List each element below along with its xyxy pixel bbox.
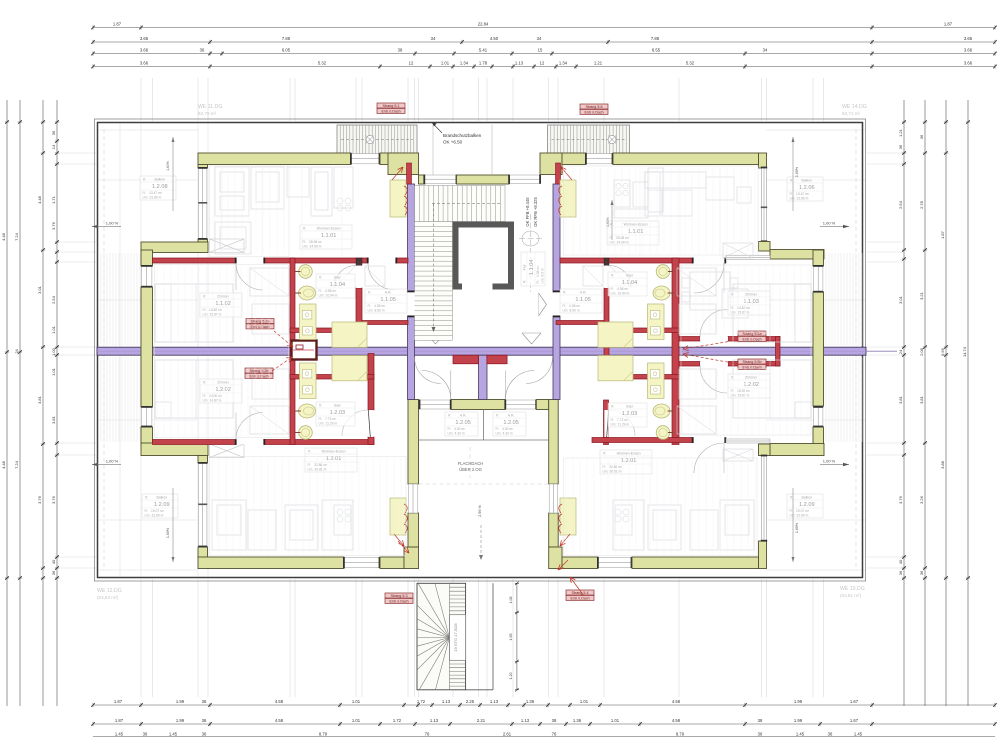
svg-text:Strang 5.5b: Strang 5.5b: [742, 360, 761, 364]
svg-text:5.32: 5.32: [318, 60, 327, 65]
svg-text:Um:: Um:: [143, 195, 149, 199]
svg-text:2.61: 2.61: [503, 732, 512, 737]
svg-text:Entl. ü.Dach: Entl. ü.Dach: [570, 596, 589, 600]
svg-text:Um:: Um:: [611, 422, 617, 426]
svg-text:1.99: 1.99: [794, 699, 803, 704]
svg-text:4.58: 4.58: [672, 718, 681, 723]
svg-text:1.01: 1.01: [611, 718, 620, 723]
svg-text:1.13: 1.13: [430, 718, 439, 723]
svg-text:38: 38: [398, 47, 403, 52]
svg-text:1.36: 1.36: [526, 699, 535, 704]
svg-text:1.71: 1.71: [51, 195, 56, 204]
svg-text:1.2.01: 1.2.01: [621, 458, 637, 464]
svg-text:WE 12.DG: WE 12.DG: [97, 588, 122, 594]
svg-text:22.80 m: 22.80 m: [150, 195, 162, 199]
svg-text:Um:: Um:: [203, 312, 209, 316]
svg-text:Um:: Um:: [308, 467, 314, 471]
svg-text:3.76: 3.76: [37, 495, 42, 504]
svg-text:3.21: 3.21: [919, 291, 924, 300]
svg-text:R:: R:: [145, 496, 148, 500]
svg-text:4.50: 4.50: [490, 36, 499, 41]
svg-text:7.24: 7.24: [14, 460, 19, 469]
svg-text:1.2.03: 1.2.03: [622, 411, 638, 417]
svg-text:1.2.05: 1.2.05: [503, 420, 519, 426]
svg-text:Brandschutzbalken: Brandschutzbalken: [443, 133, 482, 138]
svg-text:1.1.05: 1.1.05: [380, 297, 396, 303]
svg-text:6.99: 6.99: [940, 347, 945, 356]
svg-text:Um:: Um:: [303, 244, 309, 248]
svg-text:Zimmer: Zimmer: [745, 376, 758, 380]
svg-text:Um:: Um:: [540, 278, 544, 284]
svg-text:3.66: 3.66: [964, 60, 973, 65]
svg-text:24.99 m: 24.99 m: [617, 240, 629, 244]
svg-text:Um:: Um:: [790, 196, 796, 200]
svg-text:R:: R:: [611, 274, 614, 278]
svg-text:1.01: 1.01: [352, 718, 361, 723]
svg-text:24: 24: [898, 349, 903, 354]
svg-text:3.66: 3.66: [140, 36, 149, 41]
svg-text:15.87 m: 15.87 m: [738, 393, 750, 397]
svg-text:1.36: 1.36: [573, 718, 582, 723]
svg-text:1.67: 1.67: [850, 718, 859, 723]
svg-text:1.2.08: 1.2.08: [152, 184, 168, 190]
svg-text:1.72: 1.72: [417, 699, 426, 704]
svg-text:(63,83 m²): (63,83 m²): [97, 595, 119, 600]
svg-text:Wohnen-Essen: Wohnen-Essen: [322, 450, 346, 454]
svg-text:3.81: 3.81: [51, 415, 56, 424]
svg-text:R:: R:: [610, 223, 613, 227]
svg-text:22.84: 22.84: [478, 21, 489, 26]
svg-text:3.76: 3.76: [898, 495, 903, 504]
svg-text:4.48: 4.48: [37, 195, 42, 204]
svg-text:1,00 %: 1,00 %: [106, 221, 119, 226]
svg-text:6.55: 6.55: [652, 47, 661, 52]
svg-text:R:: R:: [523, 280, 527, 283]
svg-text:4.58: 4.58: [275, 699, 284, 704]
svg-text:1.87: 1.87: [115, 718, 124, 723]
svg-text:1.01: 1.01: [352, 699, 361, 704]
svg-text:Um:: Um:: [563, 308, 569, 312]
svg-text:15: 15: [538, 47, 543, 52]
svg-text:Balkon: Balkon: [154, 178, 165, 182]
svg-text:.24: .24: [14, 348, 19, 354]
svg-text:Strang 5.3: Strang 5.3: [390, 594, 407, 598]
svg-text:Balkon: Balkon: [801, 179, 812, 183]
svg-text:Wohnen-Essen: Wohnen-Essen: [617, 452, 641, 456]
svg-text:8.79: 8.79: [676, 732, 685, 737]
svg-text:3.81: 3.81: [919, 395, 924, 404]
svg-text:Um:: Um:: [145, 513, 151, 517]
svg-text:Strang 5.5a: Strang 5.5a: [742, 332, 762, 336]
svg-text:30.81 m: 30.81 m: [315, 467, 327, 471]
svg-text:19 STG 17,5/28: 19 STG 17,5/28: [453, 623, 458, 652]
svg-text:1.2.09: 1.2.09: [154, 502, 170, 508]
svg-text:40: 40: [898, 559, 903, 564]
svg-text:Um:: Um:: [731, 393, 737, 397]
svg-text:1.78: 1.78: [479, 60, 488, 65]
svg-text:R:: R:: [731, 376, 734, 380]
svg-text:2.78: 2.78: [919, 200, 924, 209]
svg-text:36: 36: [202, 732, 207, 737]
svg-text:1.2.02: 1.2.02: [215, 387, 231, 393]
svg-text:1.87: 1.87: [114, 699, 123, 704]
svg-text:14.74: 14.74: [962, 346, 967, 357]
svg-text:76: 76: [552, 732, 557, 737]
svg-text:R:: R:: [308, 450, 311, 454]
svg-text:Zimmer: Zimmer: [217, 381, 230, 385]
svg-text:Balkon: Balkon: [156, 496, 167, 500]
svg-text:OK RFB +8.325: OK RFB +8.325: [533, 196, 538, 226]
svg-text:3.66: 3.66: [964, 36, 973, 41]
svg-text:R:: R:: [143, 178, 146, 182]
svg-text:1,00 %: 1,00 %: [823, 221, 836, 226]
svg-text:3.26: 3.26: [919, 495, 924, 504]
svg-text:8.50 m: 8.50 m: [570, 308, 580, 312]
svg-text:4.48: 4.48: [1, 232, 6, 241]
svg-text:1.45: 1.45: [796, 732, 805, 737]
svg-text:1.00: 1.00: [51, 347, 56, 356]
svg-text:36: 36: [200, 47, 205, 52]
svg-text:1,00 %: 1,00 %: [823, 459, 836, 464]
svg-text:1.87: 1.87: [944, 21, 953, 26]
svg-text:1.2.02: 1.2.02: [743, 382, 759, 388]
svg-text:7.88: 7.88: [651, 36, 660, 41]
svg-text:WE 11.DG: WE 11.DG: [198, 104, 222, 110]
svg-text:63,71 m²: 63,71 m²: [842, 111, 861, 116]
svg-text:15.87 m: 15.87 m: [738, 310, 750, 314]
svg-text:R:: R:: [319, 276, 322, 280]
svg-text:Um:: Um:: [496, 431, 502, 435]
svg-text:2.54: 2.54: [51, 295, 56, 304]
svg-text:Um:: Um:: [731, 310, 737, 314]
svg-text:Entl. ü.Dach: Entl. ü.Dach: [742, 337, 761, 341]
svg-text:7.24: 7.24: [14, 232, 19, 241]
svg-text:1.2.06: 1.2.06: [799, 185, 815, 191]
svg-text:Um:: Um:: [790, 513, 796, 517]
svg-text:4.58: 4.58: [275, 718, 284, 723]
svg-text:Zimmer: Zimmer: [217, 295, 230, 299]
svg-text:8.79: 8.79: [319, 732, 328, 737]
svg-text:3.81: 3.81: [898, 395, 903, 404]
svg-text:8.50 m: 8.50 m: [375, 308, 385, 312]
svg-text:1.1.01: 1.1.01: [321, 233, 337, 239]
svg-text:1.2.09: 1.2.09: [799, 502, 815, 508]
svg-text:76: 76: [425, 732, 430, 737]
svg-text:36: 36: [919, 134, 924, 139]
svg-text:3.66: 3.66: [140, 60, 149, 65]
svg-text:1.21: 1.21: [898, 128, 903, 137]
svg-text:2.54: 2.54: [898, 200, 903, 209]
svg-text:3.01: 3.01: [37, 285, 42, 294]
svg-text:Zimmer: Zimmer: [745, 293, 758, 297]
svg-text:1.99: 1.99: [176, 718, 185, 723]
svg-text:24.99 m: 24.99 m: [310, 244, 322, 248]
svg-text:Bad: Bad: [334, 404, 340, 408]
svg-text:34: 34: [537, 36, 542, 41]
svg-text:Bad: Bad: [626, 405, 632, 409]
svg-text:36: 36: [758, 732, 763, 737]
svg-text:Um:: Um:: [319, 421, 325, 425]
svg-text:3.76: 3.76: [51, 221, 56, 230]
svg-text:A.R.: A.R.: [385, 291, 392, 295]
svg-text:2.08: 2.08: [919, 347, 924, 356]
svg-text:6.05: 6.05: [282, 47, 291, 52]
svg-text:22.80 m: 22.80 m: [152, 513, 164, 517]
svg-text:1.45: 1.45: [169, 732, 178, 737]
svg-text:1.87: 1.87: [940, 230, 945, 239]
svg-text:22.80 m: 22.80 m: [797, 513, 809, 517]
svg-text:1.99: 1.99: [176, 699, 185, 704]
svg-text:40: 40: [51, 559, 56, 564]
svg-text:Um:: Um:: [203, 398, 209, 402]
svg-text:ÜBER 2.OG: ÜBER 2.OG: [459, 467, 482, 472]
svg-text:Entl. ü.Dach: Entl. ü.Dach: [389, 599, 408, 603]
svg-text:Wohnen-Essen: Wohnen-Essen: [624, 223, 648, 227]
svg-text:1.01: 1.01: [51, 367, 56, 376]
svg-text:R:: R:: [496, 414, 499, 418]
svg-text:WE 14.DG: WE 14.DG: [842, 104, 867, 110]
svg-text:1,60%: 1,60%: [795, 166, 799, 177]
svg-text:R:: R:: [303, 227, 306, 231]
svg-text:5.41: 5.41: [479, 47, 488, 52]
svg-text:8.0 m: 8.0 m: [540, 268, 544, 276]
svg-text:1.1.04: 1.1.04: [330, 282, 346, 288]
svg-text:1.1.04: 1.1.04: [622, 280, 638, 286]
svg-text:36: 36: [898, 144, 903, 149]
svg-text:Bad: Bad: [334, 276, 340, 280]
svg-text:1,60%: 1,60%: [166, 527, 170, 538]
svg-text:1.13: 1.13: [442, 699, 451, 704]
svg-text:(63,81 m²): (63,81 m²): [840, 593, 862, 598]
svg-text:1.13: 1.13: [521, 718, 530, 723]
svg-text:Um:: Um:: [368, 308, 374, 312]
svg-text:Um:: Um:: [319, 293, 325, 297]
svg-text:3.66: 3.66: [140, 47, 149, 52]
svg-text:1.67: 1.67: [850, 699, 859, 704]
svg-text:36: 36: [51, 130, 56, 135]
svg-text:Strang 5.6: Strang 5.6: [585, 105, 602, 109]
svg-text:A.R.: A.R.: [580, 291, 587, 295]
svg-text:3.88: 3.88: [940, 460, 945, 469]
svg-text:36: 36: [51, 570, 56, 575]
svg-text:3.66: 3.66: [964, 47, 973, 52]
svg-text:Um:: Um:: [611, 291, 617, 295]
svg-text:3.01: 3.01: [898, 295, 903, 304]
svg-text:4.48: 4.48: [1, 460, 6, 469]
svg-text:Entl. ü.Dach: Entl. ü.Dach: [249, 374, 268, 378]
svg-text:12: 12: [540, 60, 545, 65]
svg-text:A.R.: A.R.: [460, 414, 467, 418]
svg-text:Um:: Um:: [448, 431, 454, 435]
svg-text:Entl. ü.Dach: Entl. ü.Dach: [584, 110, 603, 114]
svg-text:Flur: Flur: [523, 263, 527, 270]
svg-text:Strang 5.4: Strang 5.4: [571, 591, 588, 595]
svg-text:11.29 m: 11.29 m: [326, 421, 338, 425]
svg-text:1.45: 1.45: [115, 732, 124, 737]
svg-text:Bad: Bad: [626, 274, 632, 278]
svg-text:1.13: 1.13: [490, 699, 499, 704]
svg-text:WE 13.DG: WE 13.DG: [840, 586, 865, 592]
svg-text:4.30 m: 4.30 m: [503, 431, 513, 435]
svg-text:1.1.05: 1.1.05: [575, 297, 591, 303]
svg-text:1.1.04: 1.1.04: [529, 260, 535, 276]
svg-text:11.29 m: 11.29 m: [618, 422, 630, 426]
svg-text:34: 34: [431, 36, 436, 41]
svg-text:38: 38: [552, 718, 557, 723]
svg-text:Um:: Um:: [610, 240, 616, 244]
svg-text:1.01: 1.01: [580, 699, 589, 704]
svg-text:OK FFB +8.445: OK FFB +8.445: [525, 197, 530, 227]
svg-text:1.34: 1.34: [559, 60, 568, 65]
svg-text:36: 36: [898, 570, 903, 575]
svg-text:2,96 %: 2,96 %: [478, 504, 482, 516]
svg-text:Entl. ü.Dach: Entl. ü.Dach: [381, 109, 400, 113]
svg-text:FLACHDACH: FLACHDACH: [458, 461, 484, 466]
svg-text:Um:: Um:: [603, 469, 609, 473]
svg-text:10.94 m: 10.94 m: [618, 291, 630, 295]
svg-text:1.13: 1.13: [515, 60, 524, 65]
svg-text:1.2.01: 1.2.01: [326, 456, 342, 462]
svg-text:30.81 m: 30.81 m: [610, 469, 622, 473]
svg-text:1.2.03: 1.2.03: [330, 410, 346, 416]
svg-text:1.65: 1.65: [509, 634, 513, 641]
svg-text:38: 38: [758, 718, 763, 723]
svg-text:R:: R:: [731, 293, 734, 297]
svg-text:1.20: 1.20: [509, 673, 513, 680]
svg-text:Strang 5.1: Strang 5.1: [382, 104, 399, 108]
svg-text:36: 36: [202, 699, 207, 704]
svg-text:4.30 m: 4.30 m: [455, 431, 465, 435]
svg-text:1.1.02: 1.1.02: [215, 301, 231, 307]
svg-text:1.45: 1.45: [854, 732, 863, 737]
svg-text:R:: R:: [448, 414, 451, 418]
svg-text:R:: R:: [611, 405, 614, 409]
svg-text:5.32: 5.32: [686, 60, 695, 65]
svg-text:1.01: 1.01: [51, 325, 56, 334]
svg-text:Strang 5.2b: Strang 5.2b: [249, 369, 268, 373]
svg-text:1.21: 1.21: [594, 60, 603, 65]
svg-text:14: 14: [51, 144, 56, 149]
svg-text:36: 36: [202, 718, 207, 723]
svg-text:1.1.03: 1.1.03: [743, 299, 759, 305]
svg-text:22.80 m: 22.80 m: [797, 196, 809, 200]
svg-text:62,79 m²: 62,79 m²: [198, 111, 217, 116]
svg-text:10.94 m: 10.94 m: [326, 293, 338, 297]
svg-text:1.01: 1.01: [441, 60, 450, 65]
svg-text:12: 12: [409, 60, 414, 65]
svg-text:36: 36: [143, 732, 148, 737]
svg-text:1.99: 1.99: [794, 718, 803, 723]
svg-text:1.08: 1.08: [509, 597, 513, 604]
svg-text:1,00 %: 1,00 %: [106, 459, 119, 464]
svg-text:OK +6.50: OK +6.50: [443, 140, 463, 145]
svg-text:R:: R:: [603, 452, 606, 456]
svg-text:R:: R:: [368, 291, 371, 295]
svg-text:34: 34: [763, 47, 768, 52]
svg-text:Entl. ü.Dach: Entl. ü.Dach: [250, 325, 269, 329]
svg-text:1.87: 1.87: [113, 21, 122, 26]
svg-text:3.81: 3.81: [37, 395, 42, 404]
svg-text:A.R.: A.R.: [508, 414, 515, 418]
svg-text:2.25: 2.25: [466, 699, 475, 704]
svg-text:R:: R:: [319, 404, 322, 408]
svg-text:2.21: 2.21: [477, 718, 486, 723]
svg-text:1.72: 1.72: [393, 718, 402, 723]
svg-text:1.1.01: 1.1.01: [628, 229, 644, 235]
svg-text:R:: R:: [563, 291, 566, 295]
svg-text:3.76: 3.76: [51, 495, 56, 504]
svg-text:36: 36: [919, 570, 924, 575]
svg-text:1.2.05: 1.2.05: [455, 420, 471, 426]
svg-text:7.88: 7.88: [282, 36, 291, 41]
svg-text:Balkon: Balkon: [801, 496, 812, 500]
svg-text:Wohnen-Essen: Wohnen-Essen: [317, 227, 341, 231]
svg-text:1,60%: 1,60%: [795, 522, 799, 533]
svg-text:4.58: 4.58: [672, 699, 681, 704]
svg-text:1.34: 1.34: [460, 60, 469, 65]
svg-text:Strang 5.2a: Strang 5.2a: [250, 320, 270, 324]
svg-text:1,60%: 1,60%: [166, 161, 170, 171]
svg-text:36: 36: [828, 732, 833, 737]
